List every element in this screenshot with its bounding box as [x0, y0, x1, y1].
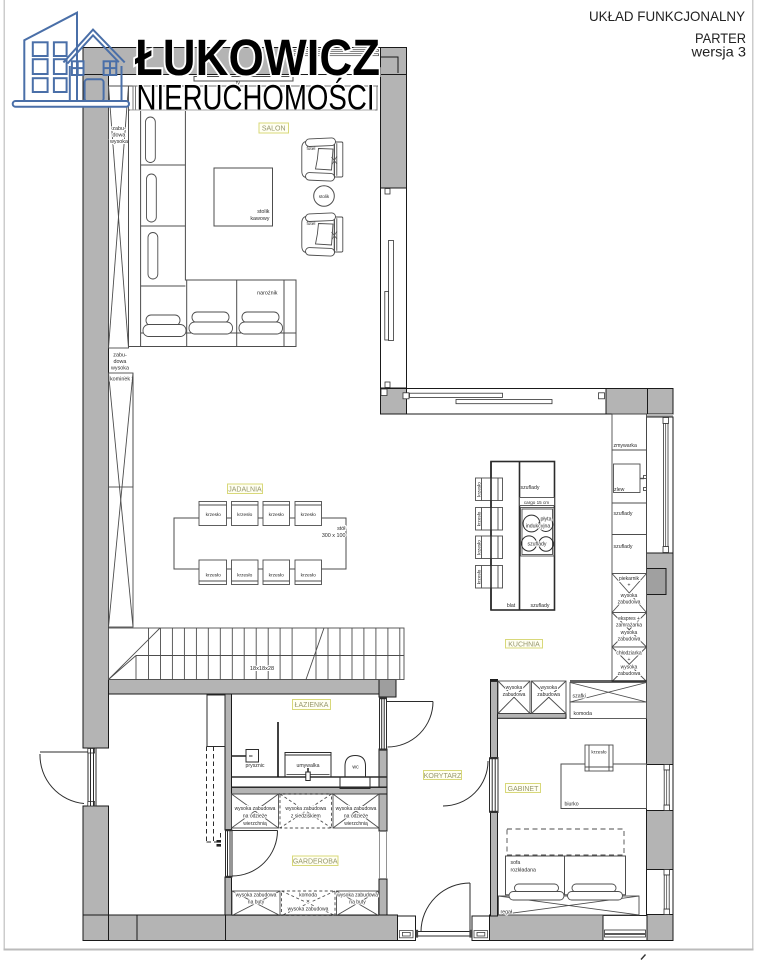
svg-text:wysoka zabudowa: wysoka zabudowa — [288, 907, 329, 913]
svg-text:krzesło: krzesło — [476, 569, 481, 584]
svg-text:szuflady: szuflady — [530, 603, 549, 609]
svg-text:piekarnik: piekarnik — [619, 576, 640, 582]
svg-text:kominek: kominek — [110, 377, 130, 383]
svg-text:stolik: stolik — [319, 194, 330, 199]
svg-text:krzesło: krzesło — [476, 511, 481, 526]
svg-text:wysoka zabudowa: wysoka zabudowa — [236, 893, 277, 899]
svg-text:GARDEROBA: GARDEROBA — [293, 859, 338, 866]
svg-text:SALON: SALON — [262, 126, 286, 133]
svg-text:krzesło: krzesło — [476, 540, 481, 555]
svg-text:szuflady: szuflady — [614, 511, 633, 517]
svg-text:wierzchnią: wierzchnią — [243, 821, 267, 827]
svg-text:JADALNIA: JADALNIA — [228, 487, 262, 494]
svg-text:ŁAZIENKA: ŁAZIENKA — [295, 702, 329, 709]
svg-text:prysznic: prysznic — [246, 763, 265, 769]
svg-text:wysoka: wysoka — [621, 630, 638, 636]
svg-text:UKŁAD FUNKCJONALNY: UKŁAD FUNKCJONALNY — [589, 8, 746, 24]
svg-text:zabudowa: zabudowa — [618, 600, 641, 606]
svg-text:umywalka: umywalka — [296, 763, 319, 769]
svg-text:fotel: fotel — [307, 221, 316, 226]
svg-text:wysoka: wysoka — [506, 685, 523, 691]
svg-text:krzesło: krzesło — [301, 573, 317, 579]
svg-text:wierzchnią: wierzchnią — [344, 821, 368, 827]
svg-text:zlew: zlew — [614, 487, 625, 493]
svg-text:blat: blat — [507, 603, 516, 609]
svg-text:wysoka: wysoka — [621, 665, 638, 671]
svg-text:+: + — [628, 583, 631, 589]
svg-text:wysoka zabudowa: wysoka zabudowa — [285, 806, 326, 812]
svg-text:✕: ✕ — [306, 899, 310, 905]
svg-text:na buty: na buty — [248, 900, 265, 906]
svg-text:krzesło: krzesło — [206, 512, 222, 518]
svg-text:dowa: dowa — [113, 133, 126, 139]
svg-text:kawowy: kawowy — [250, 216, 269, 222]
svg-text:wysoka: wysoka — [110, 366, 129, 372]
svg-text:narożnik: narożnik — [257, 291, 278, 297]
svg-text:krzesło: krzesło — [237, 573, 253, 579]
svg-text:KUCHNIA: KUCHNIA — [508, 641, 540, 648]
svg-text:na buty: na buty — [349, 900, 366, 906]
svg-text:indukcyjna: indukcyjna — [526, 524, 551, 530]
svg-text:zabudowa: zabudowa — [618, 637, 641, 643]
svg-text:krzesło: krzesło — [269, 512, 285, 518]
svg-text:fotel: fotel — [307, 146, 316, 151]
svg-text:wersja 3: wersja 3 — [690, 44, 746, 60]
svg-text:wysoka: wysoka — [621, 593, 638, 599]
svg-text:krzesło: krzesło — [237, 512, 253, 518]
svg-text:+: + — [628, 657, 631, 663]
svg-text:szuflady: szuflady — [614, 544, 633, 550]
svg-text:krzesło: krzesło — [476, 482, 481, 497]
svg-text:zmywarka: zmywarka — [614, 443, 637, 449]
svg-text:stolik: stolik — [257, 209, 270, 215]
svg-text:komoda: komoda — [299, 893, 317, 899]
svg-text:KORYTARZ: KORYTARZ — [424, 773, 462, 780]
svg-text:wysoka zabudowa: wysoka zabudowa — [235, 806, 276, 812]
svg-text:18x18x28: 18x18x28 — [250, 666, 274, 672]
svg-text:z siedziskiem: z siedziskiem — [291, 814, 321, 820]
svg-text:GABINET: GABINET — [508, 786, 539, 793]
svg-text:krzesło: krzesło — [269, 573, 285, 579]
svg-text:rozkładana: rozkładana — [511, 868, 536, 874]
svg-text:dowa: dowa — [114, 359, 127, 365]
svg-text:szafki: szafki — [573, 694, 586, 700]
svg-text:krzesło: krzesło — [591, 750, 607, 756]
svg-text:ekspres +: ekspres + — [618, 616, 640, 622]
svg-text:cargo 15 cm: cargo 15 cm — [524, 500, 549, 505]
svg-text:wysoka zabudowa: wysoka zabudowa — [337, 893, 378, 899]
svg-text:chłodziarka: chłodziarka — [616, 651, 642, 657]
svg-text:zabudowa: zabudowa — [503, 692, 526, 698]
svg-text:300 x 100: 300 x 100 — [322, 533, 346, 539]
svg-text:komoda: komoda — [574, 711, 593, 717]
svg-text:krzesło: krzesło — [301, 512, 317, 518]
svg-text:płyta: płyta — [541, 517, 552, 523]
svg-text:wysoka: wysoka — [540, 685, 557, 691]
svg-text:zabudowa: zabudowa — [537, 692, 560, 698]
svg-text:stół: stół — [337, 526, 346, 532]
svg-text:sofa: sofa — [511, 860, 521, 866]
svg-text:na odzieże: na odzieże — [344, 814, 368, 820]
svg-text:zabu-: zabu- — [112, 126, 126, 132]
svg-text:NIERUCHOMOŚCI: NIERUCHOMOŚCI — [137, 77, 375, 117]
svg-text:zabu-: zabu- — [113, 353, 127, 359]
svg-text:regał: regał — [501, 910, 513, 916]
svg-text:biurko: biurko — [565, 802, 579, 808]
svg-text:wc: wc — [352, 765, 359, 771]
svg-text:wysoka: wysoka — [109, 139, 128, 145]
svg-text:krzesło: krzesło — [206, 573, 222, 579]
svg-text:na odzieże: na odzieże — [243, 814, 267, 820]
svg-text:szuflady: szuflady — [527, 542, 546, 548]
svg-text:wysoka zabudowa: wysoka zabudowa — [336, 806, 377, 812]
svg-text:zamrażarka: zamrażarka — [616, 623, 642, 629]
svg-text:szuflady: szuflady — [520, 485, 539, 491]
svg-text:zabudowa: zabudowa — [618, 671, 641, 677]
